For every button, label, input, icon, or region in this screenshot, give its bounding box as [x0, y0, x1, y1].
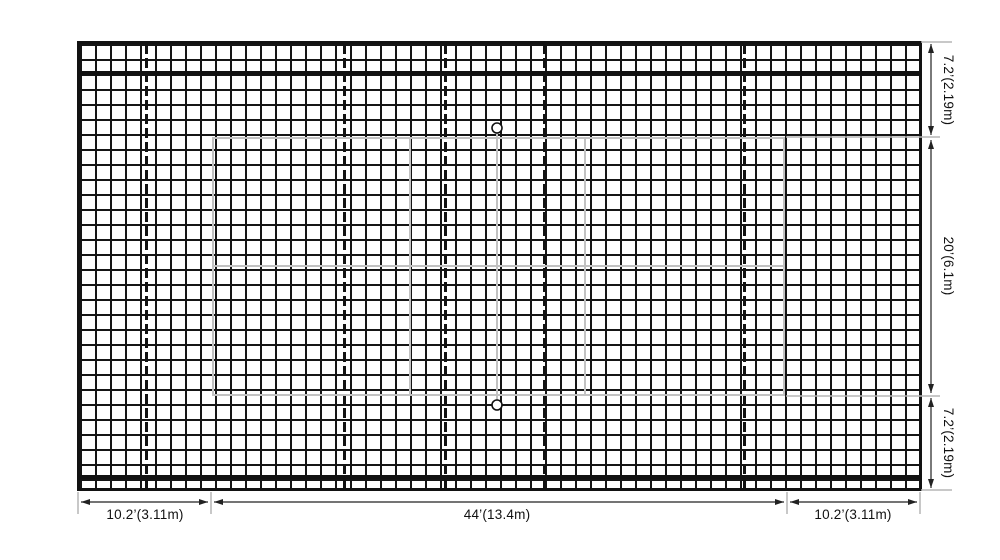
dimension-lines [81, 44, 931, 502]
dim-label-top-margin: 7.2’(2.19m) [939, 30, 957, 150]
dim-label-court-width: 20’(6.1m) [939, 206, 957, 326]
dim-label-left-margin: 10.2’(3.11m) [75, 506, 215, 524]
dimension-extension-lines [78, 42, 952, 514]
dim-label-court-length: 44’(13.4m) [427, 506, 567, 524]
court-and-dimension-lines [0, 0, 1000, 560]
dim-label-bottom-margin: 7.2’(2.19m) [939, 383, 957, 503]
badminton-court-outline [213, 127, 784, 405]
dim-label-right-margin: 10.2’(3.11m) [783, 506, 923, 524]
net-anchor-ring-bottom [492, 400, 502, 410]
net-anchor-ring-top [492, 123, 502, 133]
net-dimension-diagram: 7.2’(2.19m) 20’(6.1m) 7.2’(2.19m) 10.2’(… [0, 0, 1000, 560]
